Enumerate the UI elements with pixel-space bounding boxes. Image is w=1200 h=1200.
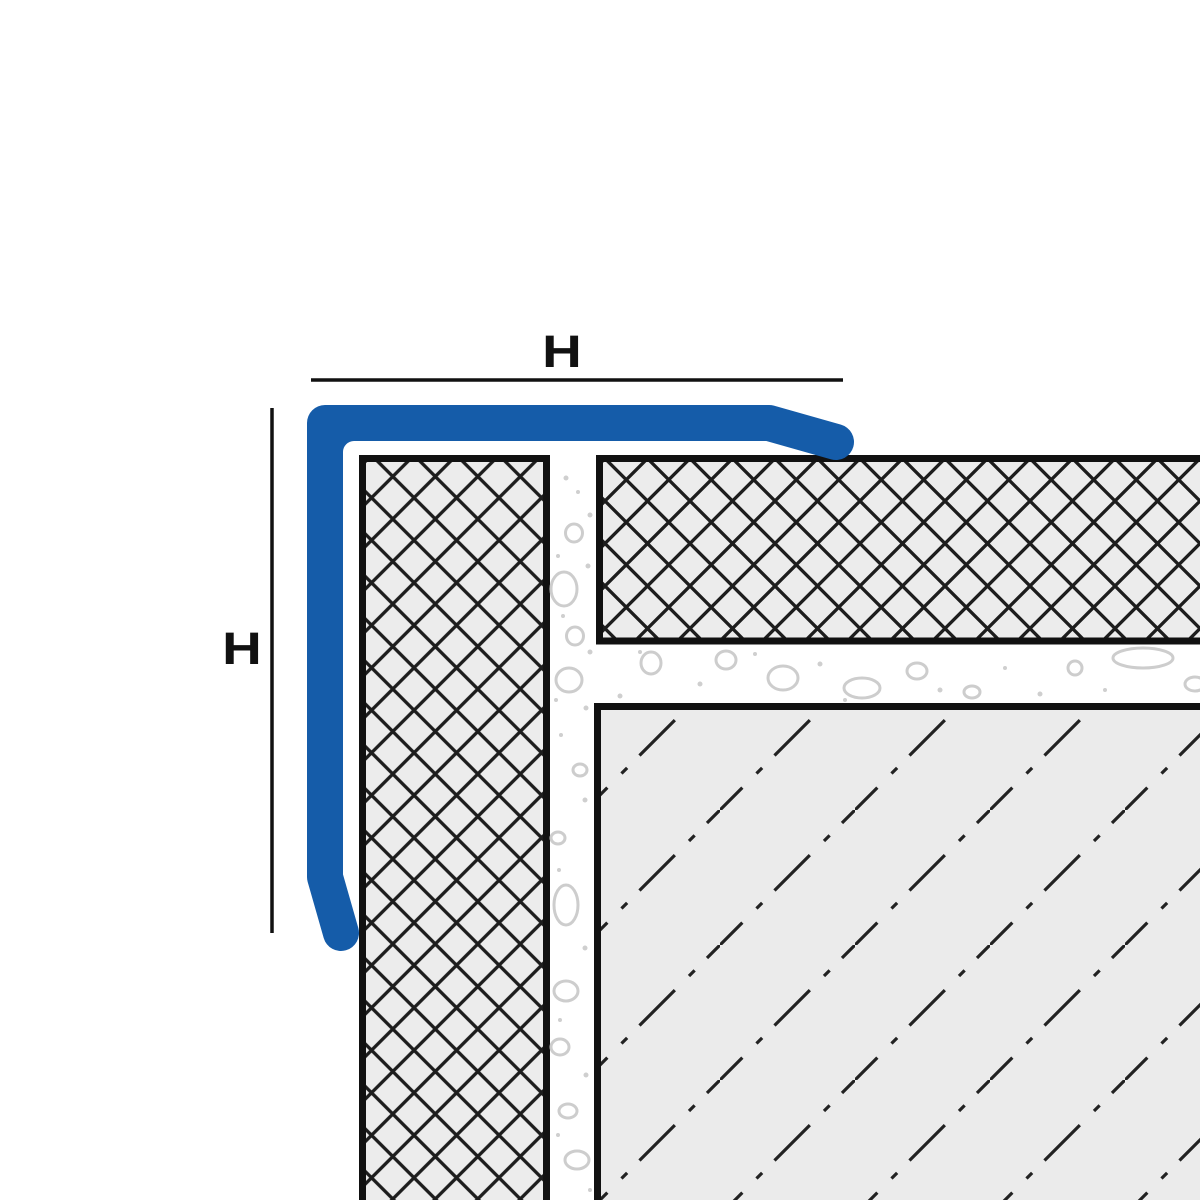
svg-text:H: H — [542, 327, 582, 377]
svg-text:H: H — [222, 624, 262, 674]
